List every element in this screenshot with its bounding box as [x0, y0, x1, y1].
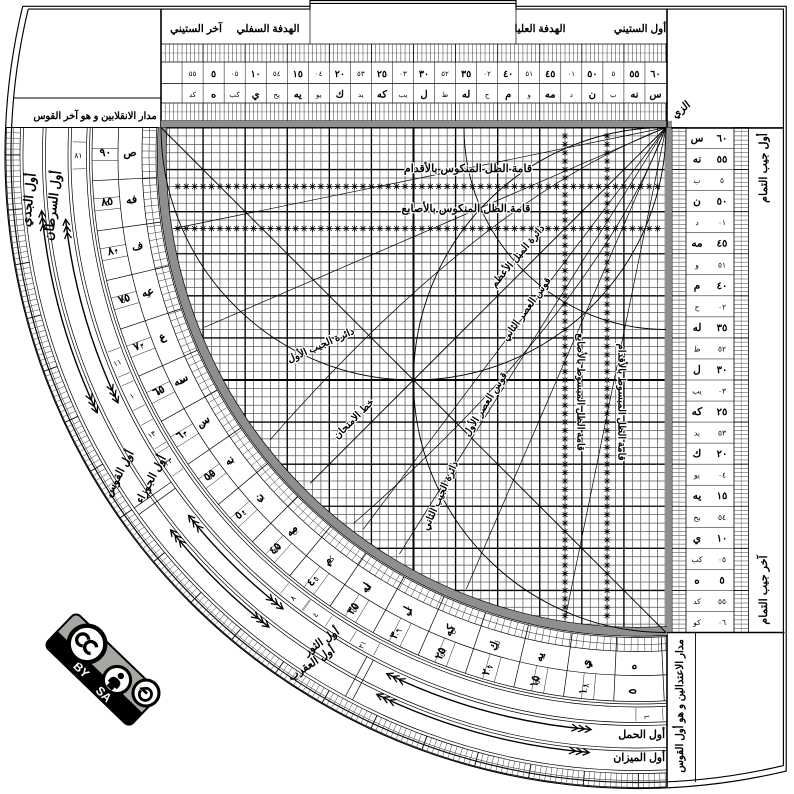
- svg-text:و: و: [526, 90, 530, 99]
- svg-text:ن: ن: [693, 196, 701, 208]
- svg-text:٦٠: ٦٠: [650, 69, 660, 80]
- svg-text:الهدفة العليا: الهدفة العليا: [514, 23, 565, 35]
- svg-text:٠٤: ٠٤: [718, 471, 726, 480]
- svg-text:ه: ه: [694, 574, 700, 586]
- svg-text:قامة الظل المنكوس بالأصابع: قامة الظل المنكوس بالأصابع: [402, 201, 531, 215]
- svg-text:٠٨: ٠٨: [581, 683, 591, 692]
- svg-text:٩٠: ٩٠: [99, 147, 111, 159]
- svg-text:٥٥: ٥٥: [718, 597, 726, 606]
- svg-text:٢٥: ٢٥: [717, 407, 728, 418]
- svg-text:ط: ط: [442, 90, 449, 99]
- svg-text:مدار الانقلابين و هو آخر القوس: مدار الانقلابين و هو آخر القوس: [33, 109, 156, 122]
- svg-text:٠٢: ٠٢: [718, 302, 726, 311]
- svg-text:ب: ب: [693, 176, 700, 185]
- svg-text:س: س: [649, 90, 661, 101]
- svg-text:آخر الستيني: آخر الستيني: [170, 21, 223, 36]
- svg-text:٥٣: ٥٣: [357, 69, 365, 78]
- svg-text:ل: ل: [693, 364, 701, 376]
- svg-text:٥٠: ٥٠: [587, 69, 597, 80]
- svg-text:٣٠: ٣٠: [717, 365, 728, 376]
- svg-text:١٥: ١٥: [717, 491, 728, 502]
- svg-text:٥: ٥: [627, 688, 639, 695]
- svg-text:لو: لو: [584, 659, 594, 667]
- svg-text:يد: يد: [694, 429, 700, 438]
- svg-text:كو: كو: [692, 618, 701, 627]
- svg-text:قامة الظل المنكوس بالأقدام: قامة الظل المنكوس بالأقدام: [404, 161, 532, 175]
- svg-text:يه: يه: [693, 490, 702, 502]
- svg-text:مدار الاعتدالين و هو أول القوس: مدار الاعتدالين و هو أول القوس: [673, 639, 686, 773]
- svg-text:يح: يح: [694, 513, 701, 522]
- svg-text:يب: يب: [692, 387, 701, 396]
- svg-text:٢٠: ٢٠: [717, 449, 728, 460]
- svg-text:٥٥: ٥٥: [629, 69, 639, 80]
- svg-text:٠٥: ٠٥: [718, 555, 726, 564]
- svg-text:آخر جيب التمام: آخر جيب التمام: [756, 554, 770, 624]
- svg-text:أول الحمل: أول الحمل: [618, 727, 665, 741]
- svg-text:١٥: ١٥: [293, 69, 303, 80]
- svg-text:٨١: ٨١: [74, 151, 82, 160]
- svg-text:ك: ك: [336, 90, 344, 101]
- svg-text:س: س: [691, 133, 704, 145]
- svg-text:٥٢: ٥٢: [718, 344, 726, 353]
- svg-text:كد: كد: [189, 90, 197, 99]
- svg-text:يب: يب: [398, 90, 407, 99]
- svg-text:٢٥: ٢٥: [377, 69, 387, 80]
- svg-text:٠١: ٠١: [567, 69, 575, 78]
- svg-text:د: د: [570, 90, 573, 99]
- svg-text:م: م: [505, 90, 511, 101]
- svg-text:٠٦: ٠٦: [718, 618, 726, 627]
- svg-text:٠٣: ٠٣: [718, 387, 727, 396]
- svg-text:قامة الظل المبسوط بالأصابع: قامة الظل المبسوط بالأصابع: [575, 333, 587, 451]
- svg-text:ص: ص: [123, 147, 137, 160]
- svg-text:٤٥: ٤٥: [545, 69, 555, 80]
- svg-text:٥: ٥: [211, 69, 216, 80]
- svg-text:٥٥: ٥٥: [189, 69, 197, 78]
- svg-text:كب: كب: [692, 555, 703, 564]
- svg-text:يو: يو: [693, 471, 700, 480]
- svg-text:ب: ب: [128, 196, 136, 206]
- svg-text:١٠: ١٠: [251, 69, 261, 80]
- svg-text:ط: ط: [694, 344, 701, 353]
- svg-text:له: له: [693, 322, 702, 334]
- svg-text:يد: يد: [358, 90, 364, 99]
- svg-text:كه: كه: [692, 406, 704, 418]
- svg-text:كب: كب: [229, 90, 240, 99]
- svg-text:أول الستيني: أول الستيني: [614, 21, 666, 36]
- svg-text:ه: ه: [211, 90, 216, 101]
- svg-text:ه: ه: [627, 663, 639, 670]
- svg-text:٤٠: ٤٠: [503, 69, 513, 80]
- svg-text:و: و: [694, 260, 699, 269]
- svg-text:٥٢: ٥٢: [441, 69, 449, 78]
- svg-text:٠٢: ٠٢: [483, 69, 491, 78]
- svg-text:ب: ب: [610, 90, 617, 99]
- svg-text:٠٣: ٠٣: [399, 69, 407, 78]
- svg-text:٥١: ٥١: [718, 260, 726, 269]
- svg-text:٥: ٥: [720, 176, 724, 185]
- svg-text:٠٤: ٠٤: [315, 69, 323, 78]
- svg-text:أول جيب التمام: أول جيب التمام: [756, 133, 770, 203]
- svg-text:٣٠: ٣٠: [419, 69, 429, 80]
- svg-text:٠٥: ٠٥: [231, 69, 239, 78]
- svg-text:٦: ٦: [642, 715, 651, 719]
- svg-text:٥: ٥: [719, 575, 724, 586]
- svg-text:نه: نه: [693, 154, 702, 166]
- svg-text:٢٠: ٢٠: [335, 69, 345, 80]
- svg-text:٥١: ٥١: [525, 69, 533, 78]
- svg-text:م: م: [694, 280, 701, 292]
- svg-text:ح: ح: [485, 90, 490, 99]
- svg-text:٥٠: ٥٠: [717, 197, 728, 208]
- svg-text:كه: كه: [377, 90, 387, 101]
- svg-text:يو: يو: [315, 90, 322, 99]
- svg-text:ن: ن: [589, 90, 596, 101]
- svg-text:مه: مه: [691, 238, 703, 250]
- svg-text:ي: ي: [693, 532, 702, 545]
- svg-text:ي: ي: [252, 90, 260, 101]
- svg-text:٥٥: ٥٥: [717, 155, 728, 166]
- svg-text:يه: يه: [294, 90, 302, 101]
- svg-text:١٠: ١٠: [717, 533, 728, 544]
- svg-text:٥٣: ٥٣: [718, 429, 727, 438]
- svg-text:أول الميزان: أول الميزان: [613, 750, 665, 764]
- svg-text:له: له: [462, 90, 470, 101]
- svg-text:٥: ٥: [611, 69, 615, 78]
- svg-text:ل: ل: [420, 90, 427, 101]
- svg-text:٦٠: ٦٠: [717, 134, 728, 145]
- svg-text:مه: مه: [545, 90, 556, 101]
- svg-text:٥٤: ٥٤: [273, 69, 281, 78]
- svg-text:نه: نه: [630, 90, 638, 101]
- svg-text:٣٥: ٣٥: [461, 69, 471, 80]
- svg-text:٥٤: ٥٤: [718, 513, 726, 522]
- svg-text:الهدفة السفلي: الهدفة السفلي: [236, 23, 299, 36]
- svg-text:٣٥: ٣٥: [717, 323, 728, 334]
- svg-text:٤٥: ٤٥: [717, 239, 728, 250]
- svg-text:ك: ك: [693, 448, 702, 460]
- svg-text:قامة الظل المبسوط بالأقدام: قامة الظل المبسوط بالأقدام: [616, 344, 628, 461]
- svg-text:٤٠: ٤٠: [717, 281, 728, 292]
- svg-text:٠١: ٠١: [718, 218, 726, 227]
- svg-text:يح: يح: [273, 90, 280, 99]
- svg-text:كد: كد: [693, 597, 701, 606]
